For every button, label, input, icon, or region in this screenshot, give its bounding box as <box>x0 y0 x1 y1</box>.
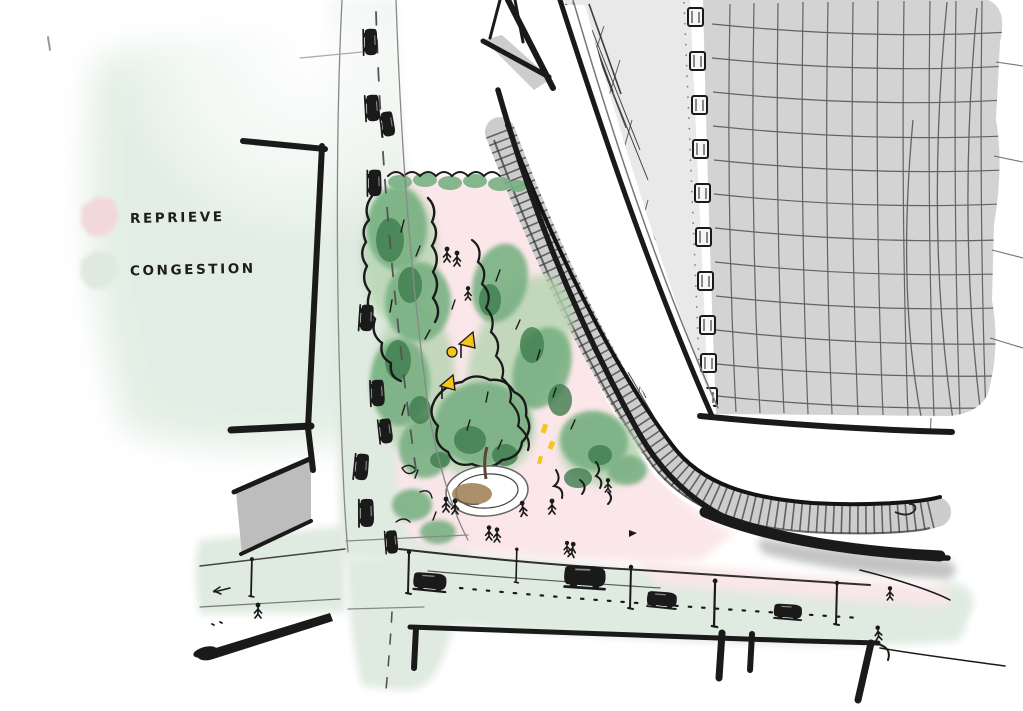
curb-corner-hook <box>878 644 889 660</box>
curb-corner-post <box>858 643 871 700</box>
window-icon <box>692 96 707 114</box>
stray-mark <box>48 37 50 50</box>
curb-post <box>750 634 752 670</box>
window-icon <box>695 184 710 202</box>
corner-building-bar <box>231 426 311 430</box>
window-icon <box>696 228 711 246</box>
window-icon <box>698 272 713 290</box>
sketch-page: Hand-drawn aerial sketch of a city corne… <box>0 0 1023 711</box>
sketch-canvas <box>0 0 1023 711</box>
congestion-swatch-icon <box>74 248 120 292</box>
sidewalk-wedge <box>192 613 333 660</box>
window-icon <box>693 140 708 158</box>
legend-label-reprieve: REPRIEVE <box>130 209 225 227</box>
legend-item-congestion: CONGESTION <box>74 248 256 292</box>
window-icon <box>688 8 703 26</box>
legend-item-reprieve: REPRIEVE <box>74 196 256 240</box>
curb-thin-tail <box>880 648 1005 666</box>
curb-post <box>719 633 722 678</box>
yellow-dot-icon <box>447 347 457 357</box>
planter-soil <box>452 483 492 505</box>
curb-post <box>414 628 416 668</box>
legend: REPRIEVE CONGESTION <box>74 196 256 300</box>
window-icon <box>700 316 715 334</box>
reprieve-swatch-icon <box>74 196 120 240</box>
legend-label-congestion: CONGESTION <box>130 261 256 280</box>
window-icon <box>701 354 716 372</box>
window-icon <box>690 52 705 70</box>
